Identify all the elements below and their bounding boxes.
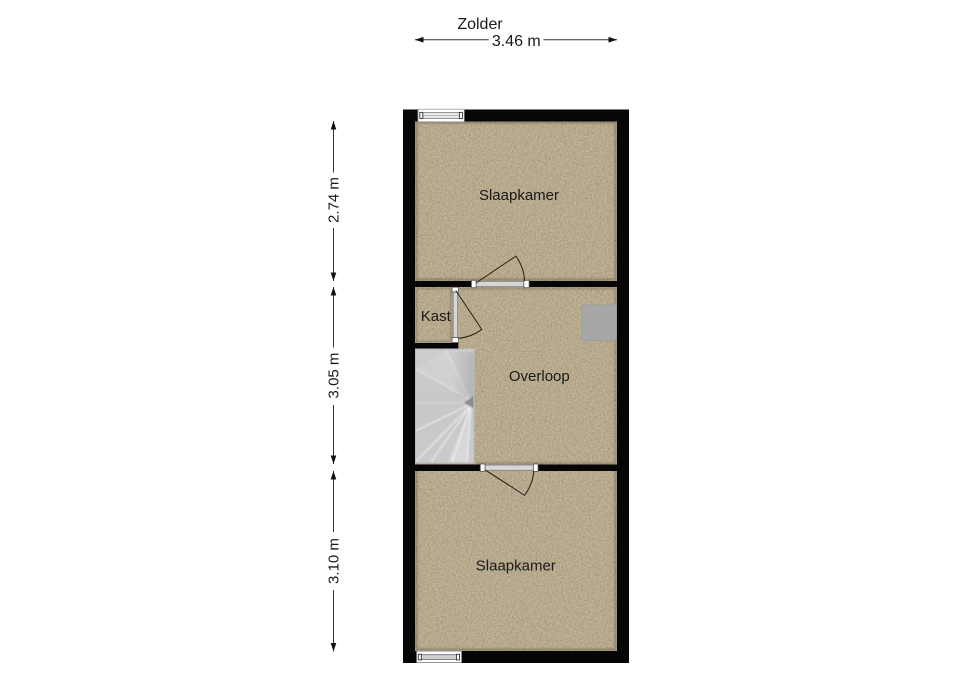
svg-text:Overloop: Overloop xyxy=(509,368,570,385)
svg-text:Slaapkamer: Slaapkamer xyxy=(476,558,556,575)
svg-text:3.05 m: 3.05 m xyxy=(326,353,343,399)
svg-text:2.74 m: 2.74 m xyxy=(326,177,343,223)
svg-text:Zolder: Zolder xyxy=(457,16,503,33)
svg-text:3.46 m: 3.46 m xyxy=(492,33,541,50)
svg-text:Kast: Kast xyxy=(421,308,452,325)
svg-text:Slaapkamer: Slaapkamer xyxy=(479,187,559,204)
svg-text:3.10 m: 3.10 m xyxy=(326,538,343,584)
